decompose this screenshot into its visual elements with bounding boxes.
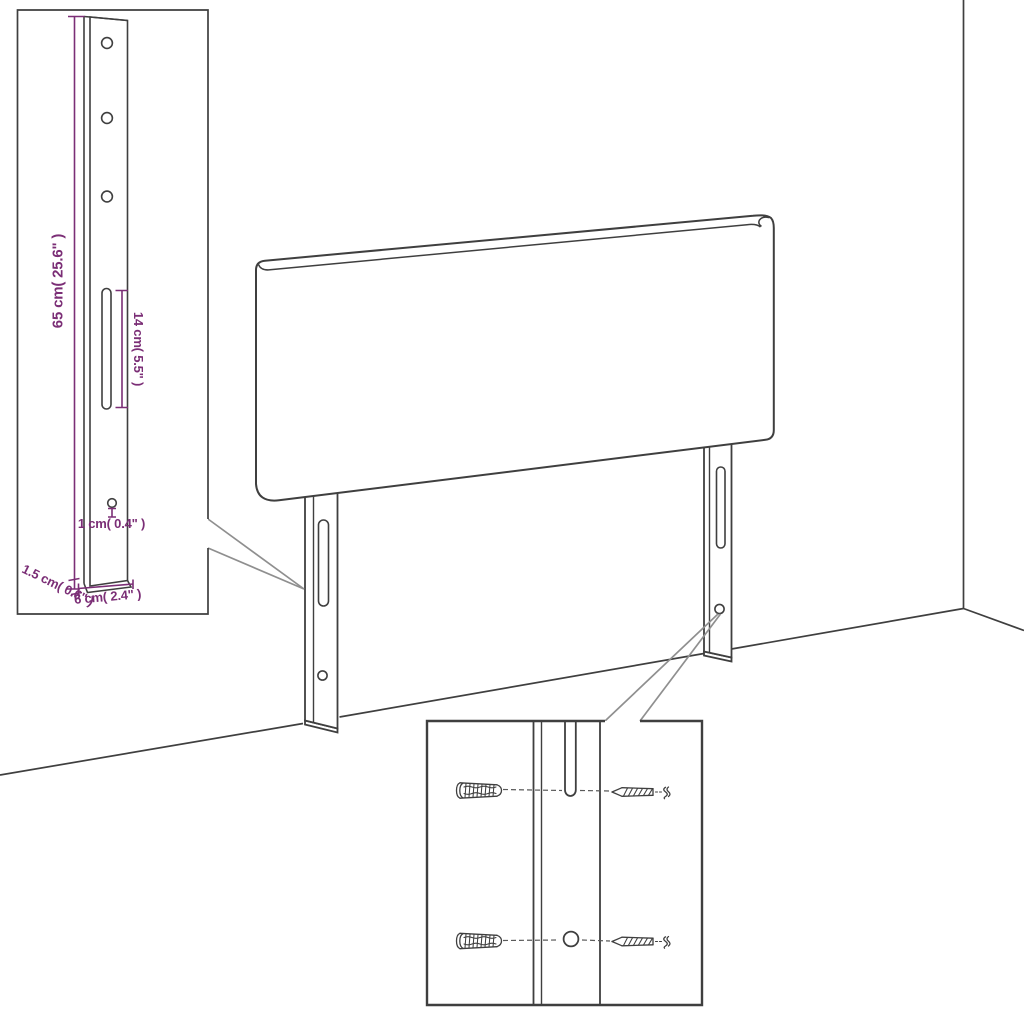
right-leg xyxy=(704,438,732,662)
bracket-detail-inset: 65 cm( 25.6" ) 14 cm( 5.5" ) 1 cm( 0.4" … xyxy=(18,10,209,614)
diagram-page: 65 cm( 25.6" ) 14 cm( 5.5" ) 1 cm( 0.4" … xyxy=(0,0,1024,1024)
left-leg-hole xyxy=(318,671,327,680)
diagram-canvas: 65 cm( 25.6" ) 14 cm( 5.5" ) 1 cm( 0.4" … xyxy=(0,0,1024,1024)
mounting-detail-inset xyxy=(427,721,702,1005)
callout-lines xyxy=(208,519,721,721)
floor-line-right xyxy=(964,609,1024,631)
dim-hole-label: 1 cm( 0.4" ) xyxy=(78,516,145,531)
left-leg xyxy=(305,484,338,733)
right-leg-slot xyxy=(717,467,726,548)
dim-slot-label: 14 cm( 5.5" ) xyxy=(131,312,146,386)
headboard xyxy=(256,215,774,500)
right-leg-hole xyxy=(715,604,724,613)
left-leg-slot xyxy=(319,520,329,606)
headboard-panel xyxy=(256,215,774,500)
dim-height-label: 65 cm( 25.6" ) xyxy=(50,234,67,329)
mounting-callout-line-2 xyxy=(640,614,721,721)
